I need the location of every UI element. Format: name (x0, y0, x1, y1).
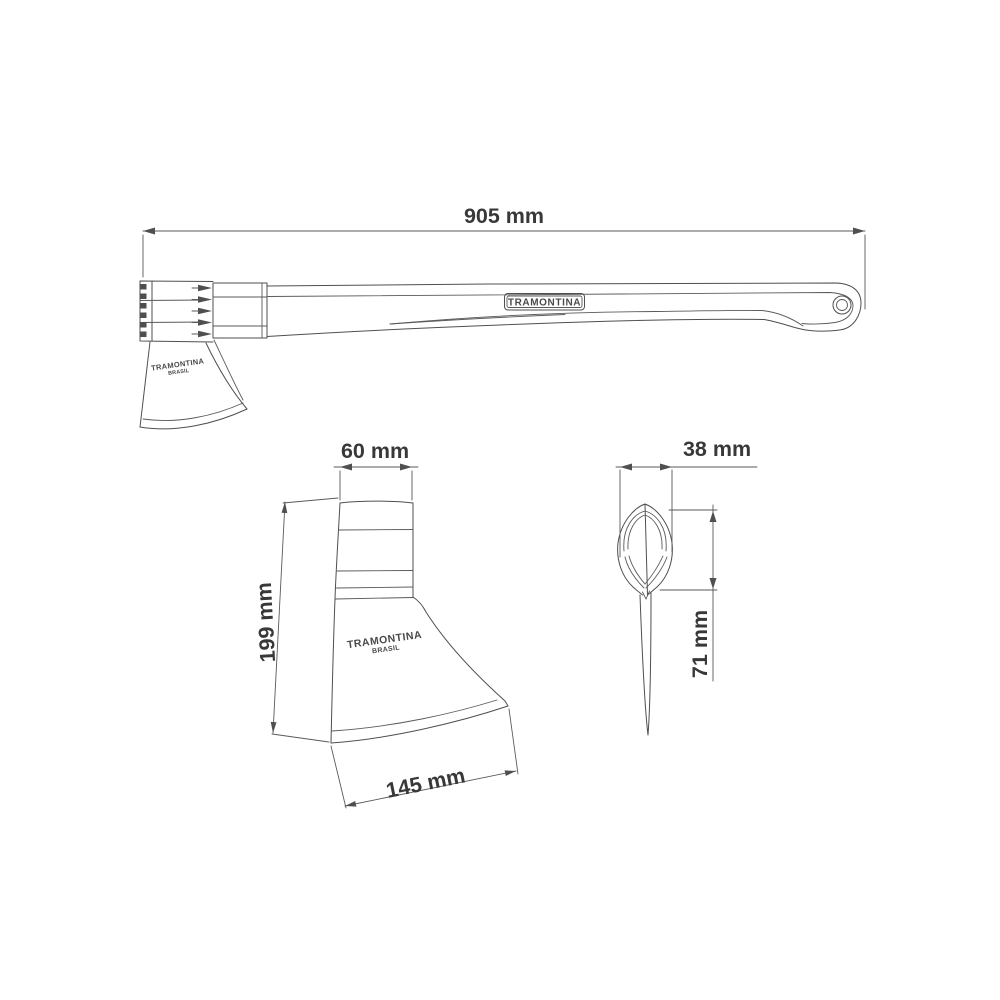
lanyard-hole-inner (837, 300, 848, 311)
technical-drawing-page: TRAMONTINA BRASIL TRAMONTINA 905 mm (0, 0, 1000, 1000)
dim-head-top-width-label: 60 mm (341, 439, 409, 463)
dim-eye-width-label: 38 mm (683, 437, 751, 461)
extension-line-bottom (272, 734, 329, 742)
handle-grip-contour (390, 310, 803, 326)
handle-collar (213, 283, 267, 338)
blade-side (140, 340, 247, 429)
arrowhead-left (340, 464, 352, 471)
arrowhead-right (400, 464, 412, 471)
eye-band-left-edge (335, 503, 340, 599)
arrowhead-left (620, 464, 632, 471)
eye-band-lines (336, 530, 414, 600)
dim-overall-length-label: 905 mm (464, 204, 544, 228)
head-stamp-side: TRAMONTINA BRASIL (151, 356, 206, 379)
extension-line-left (331, 746, 346, 808)
blade-cutting-edge (140, 409, 247, 429)
handle-side: TRAMONTINA (267, 283, 861, 337)
dim-eye-depth: 71 mm (660, 505, 717, 681)
eye-band-top (340, 501, 413, 503)
dim-eye-depth-label: 71 mm (688, 610, 712, 678)
arrowhead-right (505, 770, 516, 776)
dim-head-height-label: 199 mm (252, 582, 280, 663)
blade-front-left-edge (331, 599, 335, 743)
arrowhead-left (143, 228, 155, 235)
eye-cross-section (618, 504, 673, 735)
axe-head-side: TRAMONTINA BRASIL (140, 281, 268, 429)
handle-grip-contour-lower (390, 315, 565, 325)
dim-blade-edge-width-label: 145 mm (384, 763, 467, 802)
dim-head-height: 199 mm (252, 498, 338, 742)
arrowhead-bottom (271, 722, 277, 733)
blade-front-cutting-edge (331, 706, 508, 743)
arrowhead-top (282, 502, 288, 513)
blade-front-right-edge (413, 597, 508, 706)
blade-bevel-line (143, 403, 243, 421)
lanyard-hole-outer (833, 296, 851, 314)
extension-line-right (509, 709, 518, 774)
handle-brand-plate-label: TRAMONTINA (508, 298, 581, 309)
dim-eye-width: 38 mm (616, 437, 757, 557)
arrowhead-right (853, 228, 865, 235)
dim-blade-edge-width: 145 mm (331, 709, 518, 808)
wedge-teeth (192, 285, 212, 337)
head-stamp-front: TRAMONTINA BRASIL (346, 629, 424, 659)
side-view: TRAMONTINA BRASIL TRAMONTINA (140, 281, 862, 429)
eye-outer-outline (618, 504, 673, 595)
blade-edge-inner-v (643, 591, 650, 599)
axe-technical-drawing: TRAMONTINA BRASIL TRAMONTINA 905 mm (0, 0, 1000, 1000)
blade-front-bevel-line (332, 700, 497, 731)
handle-brand-plate: TRAMONTINA (505, 294, 585, 311)
arrowhead-top (710, 511, 717, 522)
arrowhead-left (345, 801, 356, 807)
axe-head-front: TRAMONTINA BRASIL (331, 501, 508, 743)
extension-line-top (283, 498, 338, 503)
arrowhead-right (660, 464, 672, 471)
blade-cheek-line (214, 340, 243, 400)
blade-edge-profile (640, 593, 651, 735)
blade-left-edge (140, 342, 150, 427)
dim-head-top-width: 60 mm (334, 439, 418, 500)
serration-marks (140, 284, 147, 337)
blade-right-edge (206, 343, 247, 409)
top-view: 38 mm 71 mm (616, 437, 757, 735)
arrowhead-bottom (710, 578, 717, 589)
front-view: TRAMONTINA BRASIL 60 mm 199 mm (252, 439, 518, 808)
